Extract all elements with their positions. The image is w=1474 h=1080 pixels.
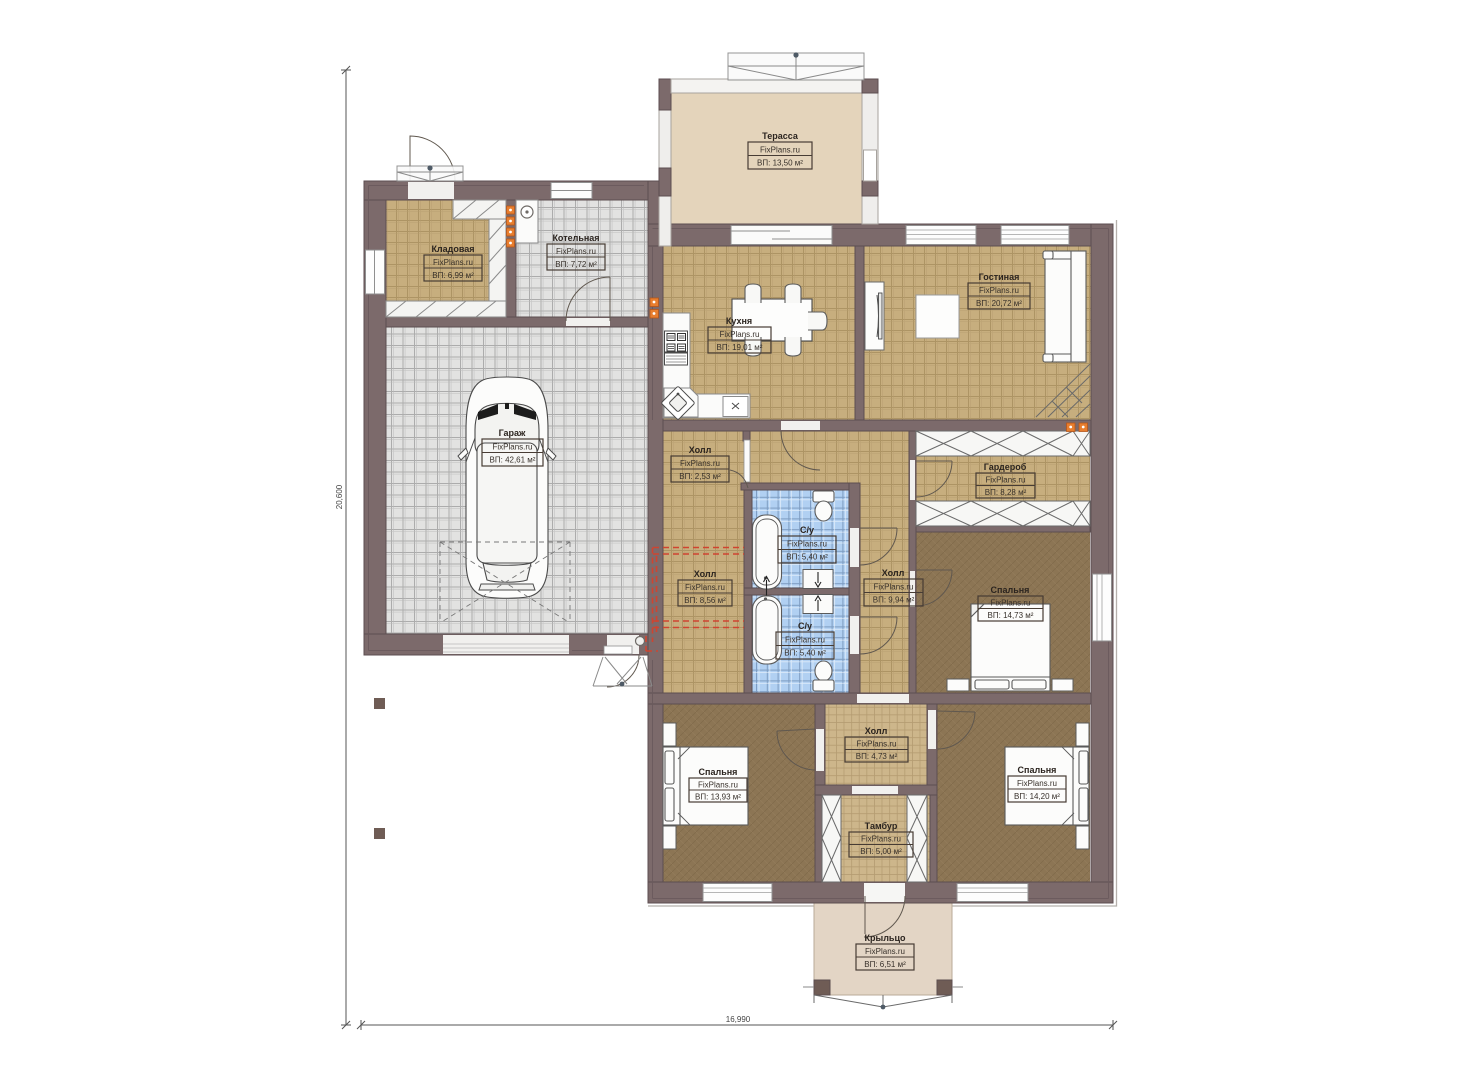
svg-text:ВП: 4,73 м²: ВП: 4,73 м²: [856, 752, 898, 761]
svg-text:FixPlans.ru: FixPlans.ru: [865, 947, 905, 956]
svg-text:Терасса: Терасса: [762, 131, 799, 141]
svg-text:FixPlans.ru: FixPlans.ru: [787, 540, 827, 549]
svg-text:ВП: 8,28 м²: ВП: 8,28 м²: [985, 488, 1027, 497]
svg-text:Гардероб: Гардероб: [984, 462, 1027, 472]
svg-text:FixPlans.ru: FixPlans.ru: [719, 330, 759, 339]
svg-text:Холл: Холл: [689, 445, 712, 455]
svg-text:FixPlans.ru: FixPlans.ru: [760, 146, 800, 155]
svg-text:Холл: Холл: [882, 568, 905, 578]
svg-text:ВП: 13,93 м²: ВП: 13,93 м²: [695, 793, 741, 802]
svg-text:Котельная: Котельная: [552, 233, 599, 243]
svg-text:FixPlans.ru: FixPlans.ru: [861, 835, 901, 844]
svg-text:Холл: Холл: [865, 726, 888, 736]
svg-text:ВП: 9,94 м²: ВП: 9,94 м²: [873, 596, 915, 605]
svg-text:ВП: 5,00 м²: ВП: 5,00 м²: [860, 847, 902, 856]
svg-text:20,600: 20,600: [335, 484, 344, 509]
svg-text:FixPlans.ru: FixPlans.ru: [856, 740, 896, 749]
svg-text:ВП: 19,01 м²: ВП: 19,01 м²: [717, 343, 763, 352]
svg-text:ВП: 14,20 м²: ВП: 14,20 м²: [1014, 792, 1060, 801]
svg-text:FixPlans.ru: FixPlans.ru: [873, 583, 913, 592]
svg-text:С/у: С/у: [798, 621, 812, 631]
svg-text:Гараж: Гараж: [499, 428, 526, 438]
svg-text:Спальня: Спальня: [991, 585, 1030, 595]
svg-text:Крыльцо: Крыльцо: [865, 933, 906, 943]
svg-text:ВП: 13,50 м²: ВП: 13,50 м²: [757, 159, 803, 168]
svg-text:ВП: 20,72 м²: ВП: 20,72 м²: [976, 299, 1022, 308]
svg-text:С/у: С/у: [800, 525, 814, 535]
svg-text:FixPlans.ru: FixPlans.ru: [556, 247, 596, 256]
svg-text:FixPlans.ru: FixPlans.ru: [492, 443, 532, 452]
svg-text:FixPlans.ru: FixPlans.ru: [1017, 779, 1057, 788]
svg-text:ВП: 6,51 м²: ВП: 6,51 м²: [864, 960, 906, 969]
svg-text:FixPlans.ru: FixPlans.ru: [785, 636, 825, 645]
svg-text:Кухня: Кухня: [726, 316, 752, 326]
svg-text:FixPlans.ru: FixPlans.ru: [990, 599, 1030, 608]
svg-text:Гостиная: Гостиная: [979, 272, 1020, 282]
svg-text:FixPlans.ru: FixPlans.ru: [979, 286, 1019, 295]
svg-text:Кладовая: Кладовая: [431, 244, 474, 254]
svg-text:FixPlans.ru: FixPlans.ru: [698, 781, 738, 790]
svg-text:Спальня: Спальня: [1018, 765, 1057, 775]
svg-text:FixPlans.ru: FixPlans.ru: [680, 459, 720, 468]
svg-text:Тамбур: Тамбур: [865, 821, 898, 831]
svg-text:ВП: 5,40 м²: ВП: 5,40 м²: [786, 553, 828, 562]
svg-text:ВП: 5,40 м²: ВП: 5,40 м²: [784, 649, 826, 658]
svg-text:ВП: 2,53 м²: ВП: 2,53 м²: [679, 472, 721, 481]
svg-text:Холл: Холл: [694, 569, 717, 579]
svg-text:ВП: 6,99 м²: ВП: 6,99 м²: [432, 271, 474, 280]
svg-text:ВП: 42,61 м²: ВП: 42,61 м²: [490, 456, 536, 465]
svg-text:FixPlans.ru: FixPlans.ru: [433, 258, 473, 267]
svg-text:16,990: 16,990: [726, 1015, 751, 1024]
svg-text:Спальня: Спальня: [699, 767, 738, 777]
svg-text:ВП: 7,72 м²: ВП: 7,72 м²: [555, 260, 597, 269]
svg-text:ВП: 14,73 м²: ВП: 14,73 м²: [988, 611, 1034, 620]
svg-text:FixPlans.ru: FixPlans.ru: [685, 583, 725, 592]
svg-text:FixPlans.ru: FixPlans.ru: [985, 476, 1025, 485]
svg-text:ВП: 8,56 м²: ВП: 8,56 м²: [684, 596, 726, 605]
